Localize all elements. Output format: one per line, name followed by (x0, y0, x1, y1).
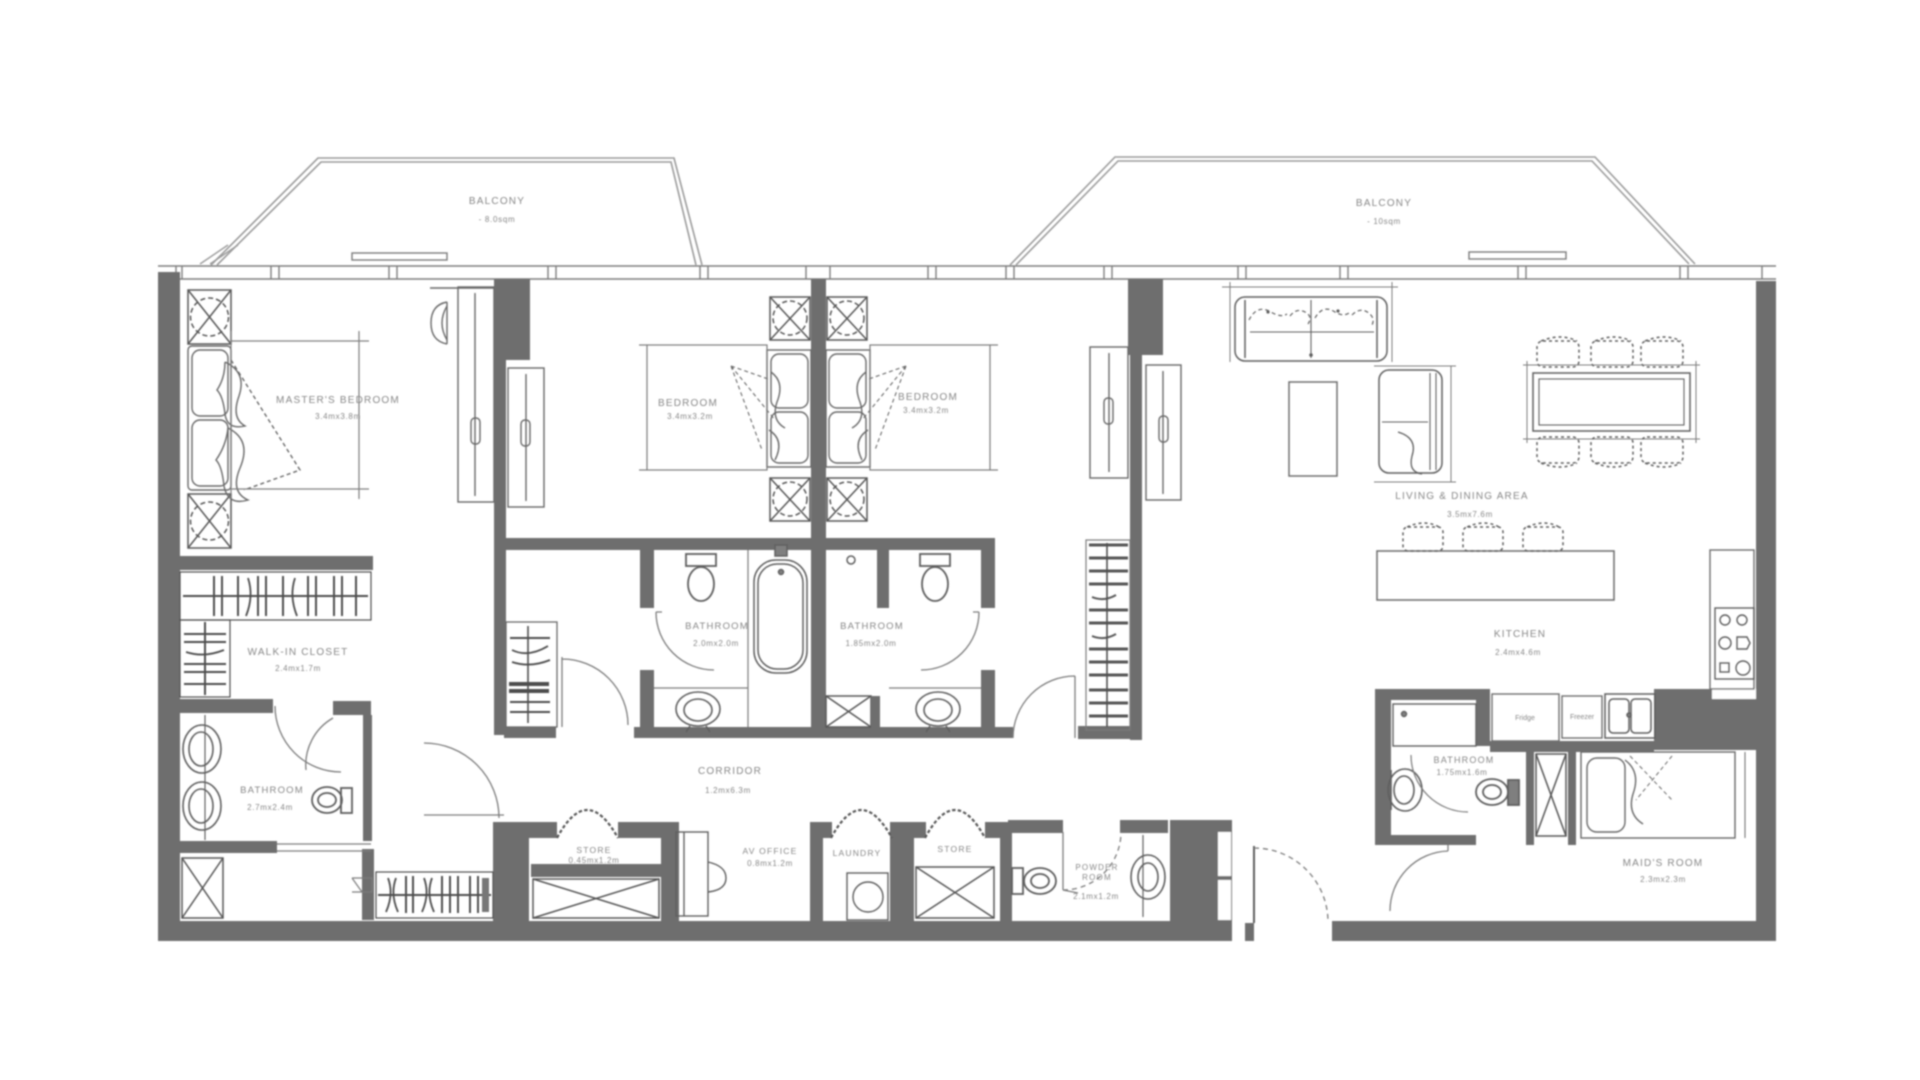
svg-text:MASTER'S BEDROOM: MASTER'S BEDROOM (276, 395, 400, 406)
svg-text:WALK-IN CLOSET: WALK-IN CLOSET (248, 647, 349, 658)
svg-text:2.1mx1.2m: 2.1mx1.2m (1073, 892, 1119, 901)
svg-text:2.4mx4.6m: 2.4mx4.6m (1495, 648, 1541, 657)
svg-text:BATHROOM: BATHROOM (685, 621, 749, 632)
svg-text:CORRIDOR: CORRIDOR (698, 766, 762, 777)
svg-text:BATHROOM: BATHROOM (840, 621, 904, 632)
svg-text:ROOM: ROOM (1082, 873, 1112, 882)
svg-text:MAID'S ROOM: MAID'S ROOM (1623, 858, 1704, 869)
svg-text:0.45mx1.2m: 0.45mx1.2m (568, 856, 619, 865)
svg-text:3.5mx7.6m: 3.5mx7.6m (1447, 510, 1493, 519)
svg-text:BEDROOM: BEDROOM (658, 398, 718, 409)
svg-text:3.4mx3.2m: 3.4mx3.2m (903, 406, 949, 415)
svg-text:STORE: STORE (937, 844, 972, 854)
svg-text:3.4mx3.2m: 3.4mx3.2m (667, 412, 713, 421)
svg-text:Freezer: Freezer (1570, 714, 1595, 721)
svg-text:BEDROOM: BEDROOM (898, 392, 958, 403)
svg-text:KITCHEN: KITCHEN (1494, 629, 1546, 640)
svg-text:1.75mx1.6m: 1.75mx1.6m (1436, 768, 1487, 777)
svg-text:0.8mx1.2m: 0.8mx1.2m (747, 859, 793, 868)
svg-text:2.7mx2.4m: 2.7mx2.4m (247, 803, 293, 812)
svg-text:1.2mx6.3m: 1.2mx6.3m (705, 786, 751, 795)
svg-text:1.85mx2.0m: 1.85mx2.0m (845, 639, 896, 648)
svg-text:- 8.0sqm: - 8.0sqm (479, 215, 516, 224)
svg-text:LAUNDRY: LAUNDRY (833, 848, 882, 858)
svg-text:- 10sqm: - 10sqm (1367, 217, 1401, 226)
svg-text:POWDER: POWDER (1075, 863, 1118, 872)
svg-text:Fridge: Fridge (1515, 715, 1535, 722)
svg-text:2.0mx2.0m: 2.0mx2.0m (693, 639, 739, 648)
svg-text:BATHROOM: BATHROOM (240, 785, 304, 796)
svg-text:BALCONY: BALCONY (1356, 198, 1412, 209)
svg-text:LIVING & DINING AREA: LIVING & DINING AREA (1395, 491, 1528, 502)
svg-text:2.3mx2.3m: 2.3mx2.3m (1640, 875, 1686, 884)
svg-text:AV OFFICE: AV OFFICE (742, 846, 797, 856)
svg-text:3.4mx3.8m: 3.4mx3.8m (315, 412, 361, 421)
svg-text:2.4mx1.7m: 2.4mx1.7m (275, 664, 321, 673)
svg-text:STORE: STORE (576, 845, 611, 855)
svg-text:BALCONY: BALCONY (469, 196, 525, 207)
svg-text:BATHROOM: BATHROOM (1434, 755, 1495, 765)
